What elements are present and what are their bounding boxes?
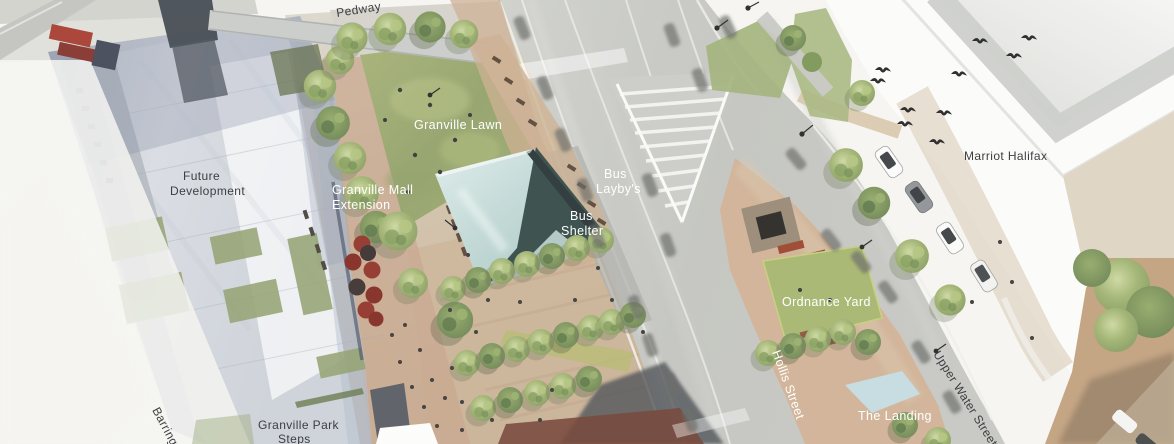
svg-text:Bus: Bus — [604, 167, 627, 181]
svg-text:Granville Park: Granville Park — [258, 418, 340, 432]
svg-text:Shelter: Shelter — [561, 224, 603, 238]
svg-text:Marriot Halifax: Marriot Halifax — [964, 149, 1047, 163]
svg-text:Future: Future — [183, 169, 220, 183]
svg-text:Bus: Bus — [570, 209, 593, 223]
svg-text:Extension: Extension — [332, 198, 391, 212]
svg-text:The Landing: The Landing — [858, 409, 932, 423]
svg-text:Development: Development — [170, 184, 245, 198]
svg-text:Steps: Steps — [278, 432, 311, 444]
svg-text:Granville Lawn: Granville Lawn — [414, 118, 502, 132]
svg-text:Layby's: Layby's — [596, 182, 641, 196]
svg-text:Ordnance Yard: Ordnance Yard — [782, 295, 871, 309]
svg-text:Granville Mall: Granville Mall — [332, 183, 413, 197]
